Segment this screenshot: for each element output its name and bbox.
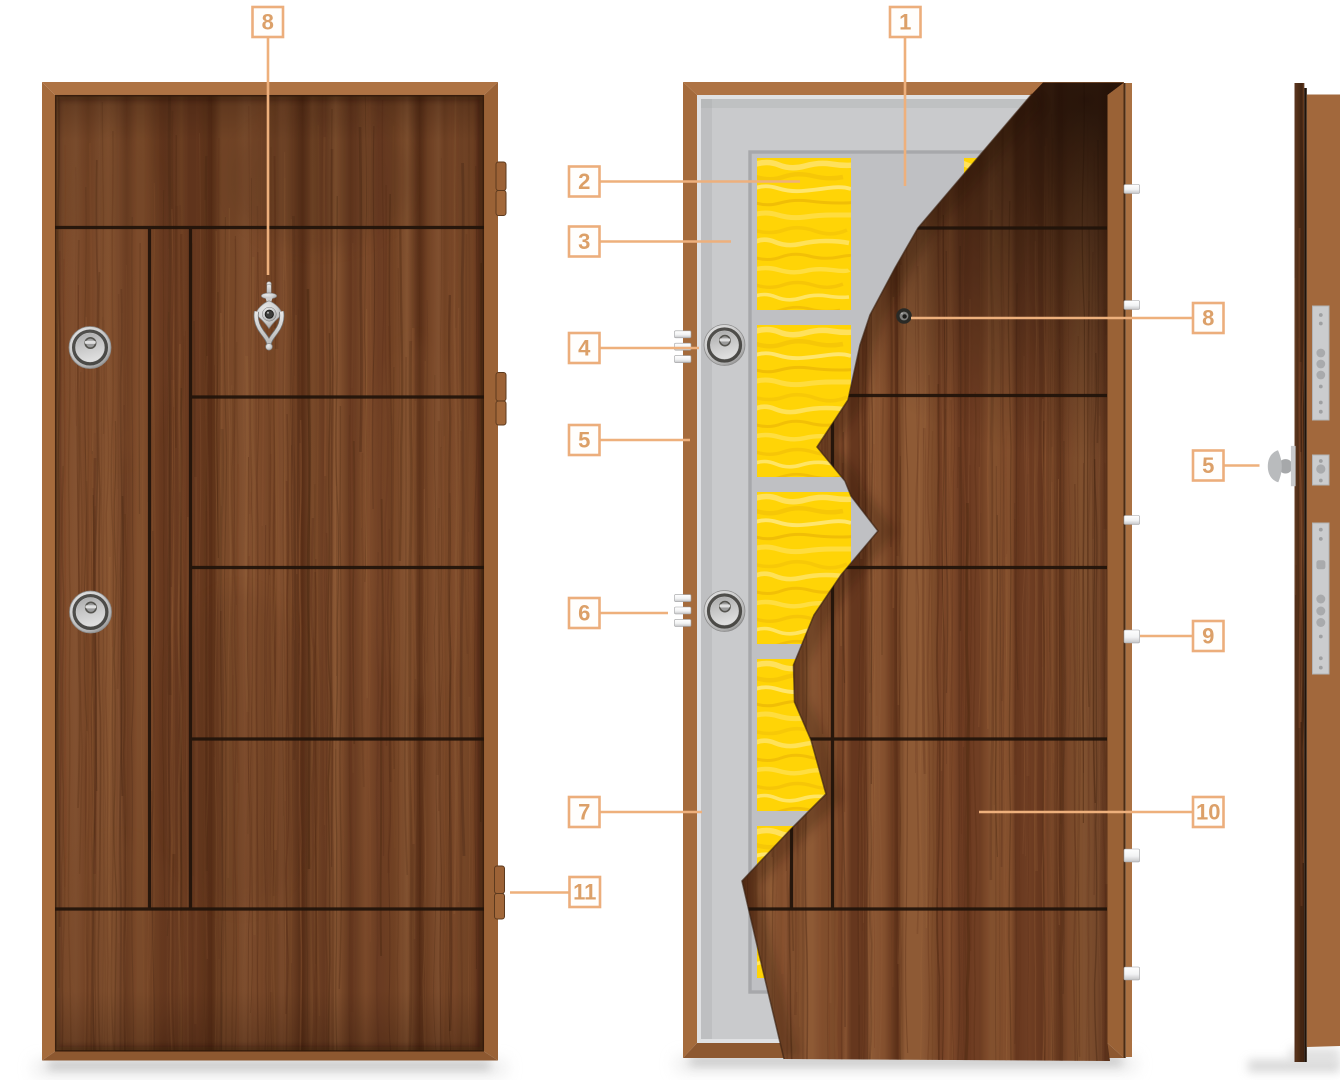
svg-text:10: 10 — [1196, 800, 1220, 825]
svg-text:3: 3 — [578, 229, 590, 254]
svg-text:5: 5 — [1202, 453, 1214, 478]
svg-text:6: 6 — [578, 601, 590, 626]
svg-text:2: 2 — [578, 169, 590, 194]
svg-text:11: 11 — [573, 880, 596, 905]
svg-text:8: 8 — [262, 10, 274, 35]
svg-text:1: 1 — [899, 10, 911, 35]
svg-text:8: 8 — [1202, 306, 1214, 331]
svg-text:7: 7 — [578, 800, 590, 825]
svg-text:4: 4 — [578, 336, 591, 361]
svg-text:9: 9 — [1202, 624, 1214, 649]
svg-text:5: 5 — [578, 428, 590, 453]
